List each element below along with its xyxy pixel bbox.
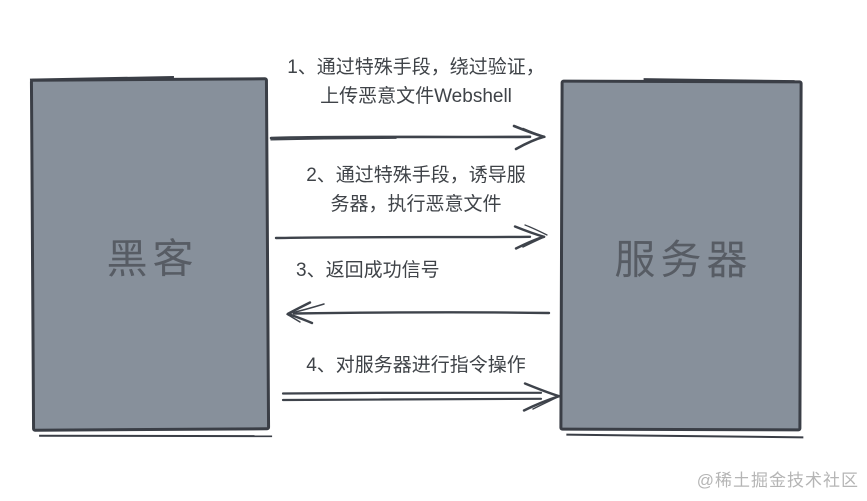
step-4-arrow-right-icon <box>278 380 568 416</box>
watermark: @稀土掘金技术社区 <box>697 466 859 491</box>
step-2-label: 2、通过特殊手段，诱导服 务器，执行恶意文件 <box>272 161 560 219</box>
step-1-arrow-right-icon <box>266 118 560 156</box>
step-line: 4、对服务器进行指令操作 <box>272 351 560 380</box>
step-1-label: 1、通过特殊手段，绕过验证， 上传恶意文件Webshell <box>272 53 560 111</box>
step-3-arrow-left-icon <box>278 295 554 331</box>
actor-box-server: 服务器 <box>559 80 802 432</box>
step-line: 2、通过特殊手段，诱导服 <box>272 161 560 190</box>
actor-label-hacker: 黑客 <box>101 224 198 285</box>
step-line: 上传恶意文件Webshell <box>272 82 560 111</box>
step-3-label: 3、返回成功信号 <box>272 256 560 285</box>
step-line: 1、通过特殊手段，绕过验证， <box>272 53 560 82</box>
step-4-label: 4、对服务器进行指令操作 <box>272 351 560 380</box>
step-line: 3、返回成功信号 <box>296 256 560 285</box>
actor-box-hacker: 黑客 <box>30 77 270 431</box>
sequence-diagram: 黑客 服务器 1、通过特殊手段，绕过验证， 上传恶意文件Webshell 2、通… <box>0 0 867 501</box>
step-2-arrow-right-icon <box>272 220 558 254</box>
step-line: 务器，执行恶意文件 <box>272 190 560 219</box>
actor-label-server: 服务器 <box>609 225 752 285</box>
